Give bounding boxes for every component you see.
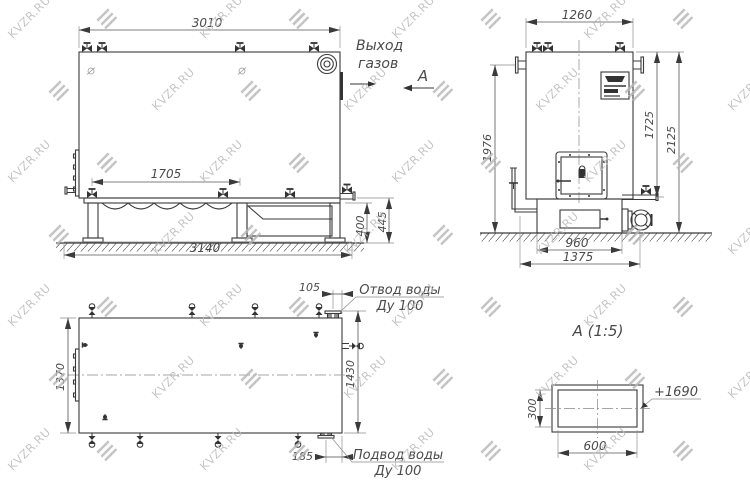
valve-icon xyxy=(83,342,89,347)
valve-icon xyxy=(97,43,107,52)
boiler-body-plan xyxy=(79,318,342,433)
right-flange xyxy=(633,61,641,69)
down-pipe xyxy=(509,168,537,212)
dim-1725: 1725 xyxy=(643,111,656,139)
dim-elevation: +1690 xyxy=(654,385,698,400)
gas-outlet-text-1: Выход xyxy=(356,38,403,54)
side-stub xyxy=(342,344,349,349)
valve-icon xyxy=(316,304,323,318)
dim-445: 445 xyxy=(376,212,389,233)
valve-icon xyxy=(89,433,96,447)
detail-view: А (1:5) 300 600 +1690 xyxy=(526,322,701,458)
valve-icon xyxy=(89,304,96,318)
water-inlet-label: Подвод воды Ду 100 xyxy=(331,437,444,479)
valve-icon xyxy=(641,186,651,195)
dim-1375: 1375 xyxy=(563,250,594,264)
outlet-text-2: Ду 100 xyxy=(376,299,424,314)
inspection-flange-icon xyxy=(318,55,337,74)
lifting-lug-icon xyxy=(87,68,95,75)
detail-title: А (1:5) xyxy=(572,322,624,340)
gas-outlet-label: Выход газов xyxy=(350,38,403,87)
water-outlet-flange xyxy=(325,311,341,318)
boiler-body-side xyxy=(79,52,340,198)
dim-185: 185 xyxy=(292,450,313,463)
dim-400: 400 xyxy=(354,216,367,237)
water-outlet-label: Отвод воды Ду 100 xyxy=(340,283,444,314)
nameplate xyxy=(601,72,629,99)
valve-icon xyxy=(342,185,352,194)
technical-drawing: 3010 1705 3140 400 445 Выход газов А xyxy=(0,0,750,500)
front-dimensions: 1260 1976 1725 2125 960 1375 xyxy=(481,8,684,268)
dim-3010: 3010 xyxy=(192,16,223,30)
ash-door xyxy=(560,210,609,228)
valve-icon xyxy=(102,414,107,420)
drawing-sheet: 3010 1705 3140 400 445 Выход газов А xyxy=(0,0,750,500)
lock-icon xyxy=(579,169,586,178)
gas-outlet-text-2: газов xyxy=(358,56,398,72)
valve-icon xyxy=(218,189,228,198)
plan-view: 105 1370 1430 185 Отвод воды Ду 100 Подв… xyxy=(54,281,444,479)
valve-icon xyxy=(543,43,553,52)
valve-icon xyxy=(87,189,97,198)
dim-600: 600 xyxy=(584,439,607,453)
valve-icon xyxy=(82,43,92,52)
lifting-lug-icon xyxy=(238,68,246,75)
valve-icon xyxy=(137,433,144,447)
section-letter: А xyxy=(417,67,428,85)
dim-1260: 1260 xyxy=(562,8,593,22)
dim-1430: 1430 xyxy=(344,360,357,388)
valve-icon xyxy=(295,433,302,447)
valve-icon xyxy=(349,343,363,350)
valve-icon xyxy=(215,433,222,447)
inlet-text-2: Ду 100 xyxy=(374,464,422,479)
furnace-door xyxy=(556,152,607,199)
valve-icon xyxy=(309,43,319,52)
dim-105: 105 xyxy=(299,281,320,294)
dim-1370: 1370 xyxy=(54,363,67,391)
valve-icon xyxy=(615,43,625,52)
front-view: 1260 1976 1725 2125 960 1375 xyxy=(480,8,712,268)
gas-outlet-flange xyxy=(340,72,343,100)
outlet-text-1: Отвод воды xyxy=(359,283,440,298)
valve-icon xyxy=(313,333,318,339)
valve-icon xyxy=(238,344,243,350)
dim-1705: 1705 xyxy=(151,167,182,181)
dim-2125: 2125 xyxy=(665,126,678,154)
side-view: 3010 1705 3140 400 445 xyxy=(56,16,394,259)
dim-1976: 1976 xyxy=(481,134,494,162)
section-arrow: А xyxy=(403,67,434,91)
drain-stub xyxy=(340,194,353,200)
dim-3140: 3140 xyxy=(190,241,221,255)
valve-icon xyxy=(532,43,542,52)
left-flange xyxy=(518,61,526,69)
valve-icon xyxy=(235,43,245,52)
valve-icon xyxy=(285,189,295,198)
dim-300: 300 xyxy=(526,399,539,420)
valve-icon xyxy=(252,304,259,318)
valve-icon xyxy=(189,304,196,318)
base-frame-side xyxy=(64,198,352,242)
dim-960: 960 xyxy=(566,236,589,250)
blower-flange-icon xyxy=(622,209,652,231)
ground-hatch xyxy=(480,234,712,242)
inlet-text-1: Подвод воды xyxy=(353,448,443,463)
